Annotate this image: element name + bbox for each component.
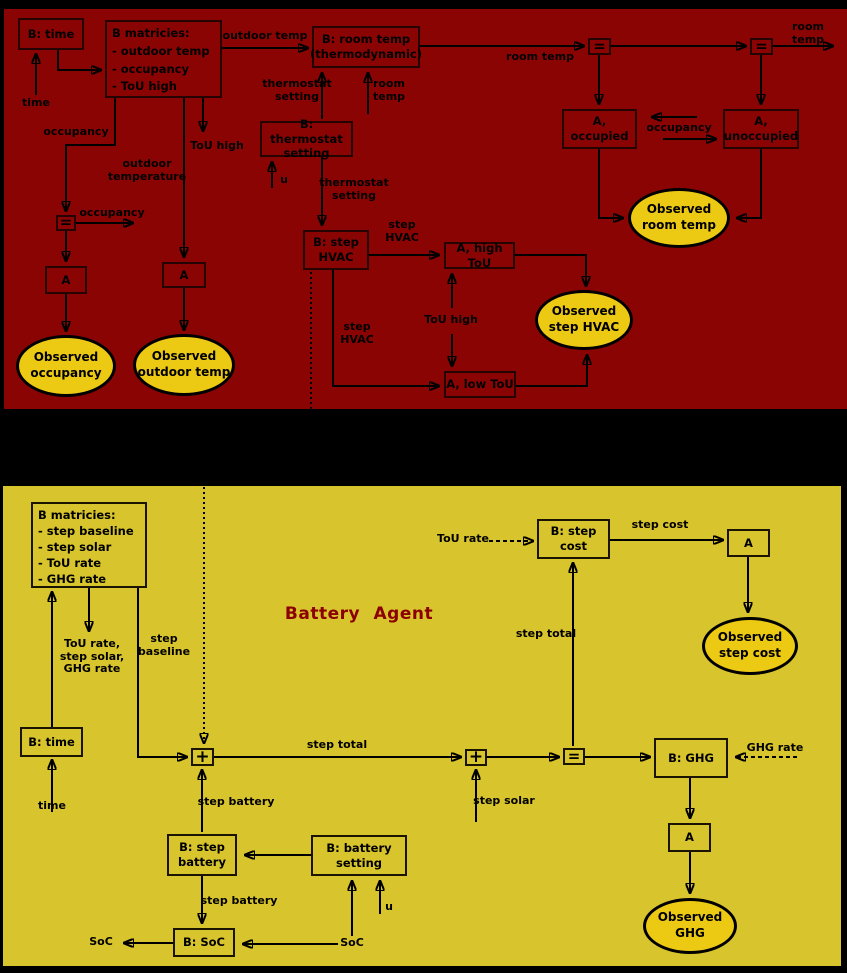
observed-step-cost-ellipse: Observed step cost <box>702 617 798 675</box>
node-b-room-temp: B: room temp (thermodynamic) <box>312 26 420 68</box>
label-occupancy-eq: occupancy <box>79 207 144 220</box>
label-room-temp-up: room temp <box>373 78 405 103</box>
label-step-total-vert: step total <box>516 628 576 641</box>
node-a-occupied: A, occupied <box>562 109 637 149</box>
label-step-cost: step cost <box>632 519 689 532</box>
node-b-step-hvac: B: step HVAC <box>303 230 369 270</box>
observed-room-temp-ellipse: Observed room temp <box>628 188 730 248</box>
node-a-outdoor: A <box>162 262 206 288</box>
label-thermostat-setting-up: thermostat setting <box>262 78 331 103</box>
label-step-hvac-down: step HVAC <box>340 321 374 346</box>
label-occupancy-between: occupancy <box>646 122 711 135</box>
label-time: time <box>22 97 50 110</box>
node-b-thermostat-setting: B: thermostat setting <box>260 121 353 157</box>
observed-step-hvac-ellipse: Observed step HVAC <box>535 290 633 350</box>
label-tou-high-between: ToU high <box>424 314 478 327</box>
node-b-ghg: B: GHG <box>654 738 728 778</box>
equality-node-2: = <box>750 38 773 55</box>
equality-node-1: = <box>588 38 611 55</box>
node-b-step-battery: B: step battery <box>167 834 237 876</box>
plus-node-1: + <box>191 748 214 766</box>
label-step-total-horiz: step total <box>307 739 367 752</box>
label-outdoor-temperature: outdoor temperature <box>108 158 186 183</box>
label-soc-left: SoC <box>89 936 113 949</box>
label-step-baseline: step baseline <box>138 633 190 658</box>
node-b-battery-setting: B: battery setting <box>311 835 407 876</box>
node-b-soc: B: SoC <box>173 928 235 957</box>
node-a-high-tou: A, high ToU <box>444 242 515 269</box>
node-b-step-cost: B: step cost <box>537 519 610 559</box>
label-tou-rate: ToU rate <box>437 533 489 546</box>
label-step-hvac-right: step HVAC <box>385 219 419 244</box>
label-thermostat-setting-down: thermostat setting <box>319 177 388 202</box>
label-step-solar: step solar <box>473 795 535 808</box>
node-b-matrices-battery: B matricies: - step baseline - step sola… <box>31 502 147 588</box>
equality-node-3: = <box>56 215 76 231</box>
node-b-time: B: time <box>18 18 84 50</box>
node-a-occupancy: A <box>45 266 87 294</box>
label-soc-right: SoC <box>340 937 364 950</box>
observed-occupancy-ellipse: Observed occupancy <box>16 335 116 397</box>
observed-outdoor-temp-ellipse: Observed outdoor temp <box>133 334 235 396</box>
label-outdoor-temp: outdoor temp <box>223 30 308 43</box>
label-step-battery-down: step battery <box>201 895 278 908</box>
battery-agent-title: Battery Agent <box>285 605 433 625</box>
label-ghg-rate: GHG rate <box>747 742 804 755</box>
label-matrices-outputs: ToU rate, step solar, GHG rate <box>60 638 124 676</box>
node-a-unoccupied: A, unoccupied <box>723 109 799 149</box>
label-u-thermostat: u <box>280 174 288 187</box>
plus-node-2: + <box>465 749 487 766</box>
node-a-ghg: A <box>668 823 711 852</box>
node-a-step-cost: A <box>727 529 770 557</box>
observed-ghg-ellipse: Observed GHG <box>643 898 737 954</box>
label-step-battery-up: step battery <box>198 796 275 809</box>
node-a-low-tou: A, low ToU <box>444 371 516 398</box>
node-b-time-battery: B: time <box>20 727 83 757</box>
label-room-temp-mid: room temp <box>506 51 574 64</box>
label-tou-high-out: ToU high <box>190 140 244 153</box>
label-room-temp-out: room temp <box>789 21 828 46</box>
node-b-matrices: B matricies: - outdoor temp - occupancy … <box>105 20 222 98</box>
equality-node-battery: = <box>563 748 585 765</box>
label-time-battery: time <box>38 800 66 813</box>
label-u-battery: u <box>385 901 393 914</box>
diagram-stage: B: time B matricies: - outdoor temp - oc… <box>0 0 847 973</box>
label-occupancy-branch: occupancy <box>43 126 108 139</box>
